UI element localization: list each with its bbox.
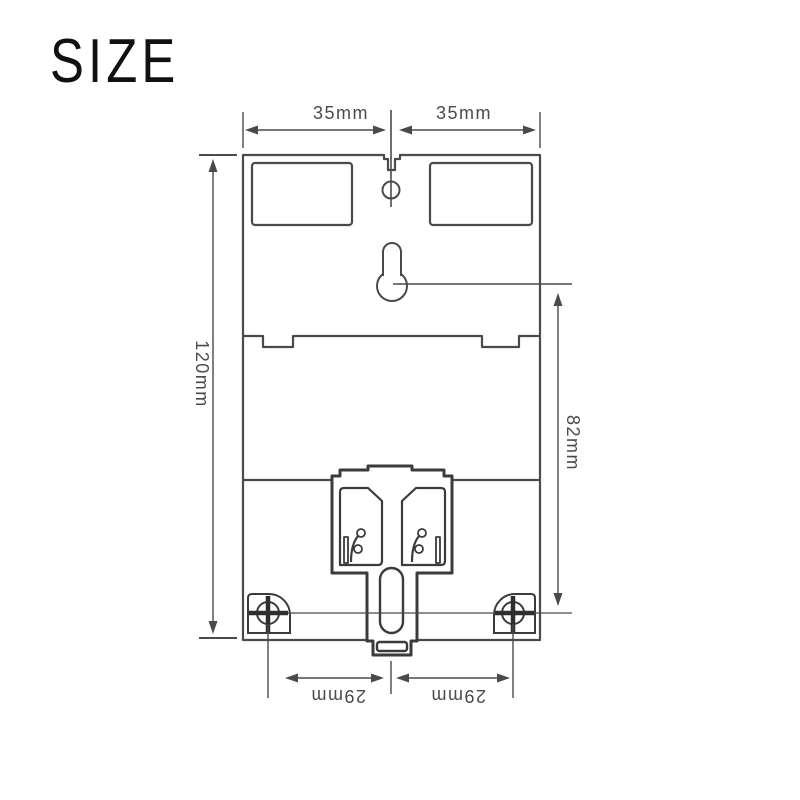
arrowhead [209,621,218,634]
clip-pull-tab [377,642,407,651]
dimension-height: 120mm [192,155,237,638]
arrowhead [209,159,218,172]
dim-label-height: 120mm [192,340,212,408]
clip-window-left [340,488,382,565]
arrowhead [373,126,386,135]
dim-label-bottom-left: 29mm [310,686,366,706]
arrowhead [554,593,563,606]
dim-label-right: 82mm [563,415,583,471]
keyhole-slot [383,243,401,276]
size-diagram: SIZE [0,0,800,800]
arrowhead [497,674,510,683]
dim-label-bottom-right: 29mm [430,686,486,706]
dim-label-top-left: 35mm [313,103,369,123]
dimension-right: 82mm [554,293,584,606]
arrowhead [554,293,563,306]
clip-slider-slot [380,568,403,633]
clip-window-right [402,488,445,565]
arrowhead [285,674,298,683]
arrowhead [399,126,412,135]
spring-knob-left [357,529,365,537]
spring-dot-left [354,545,362,553]
dimension-drawing: 35mm 35mm 120mm 82mm [0,0,800,800]
spring-dot-right [415,545,423,553]
dim-label-top-right: 35mm [436,103,492,123]
spring-knob-right [418,529,426,537]
arrowhead [245,126,258,135]
arrowhead [371,674,384,683]
arrowhead [523,126,536,135]
arrowhead [396,674,409,683]
